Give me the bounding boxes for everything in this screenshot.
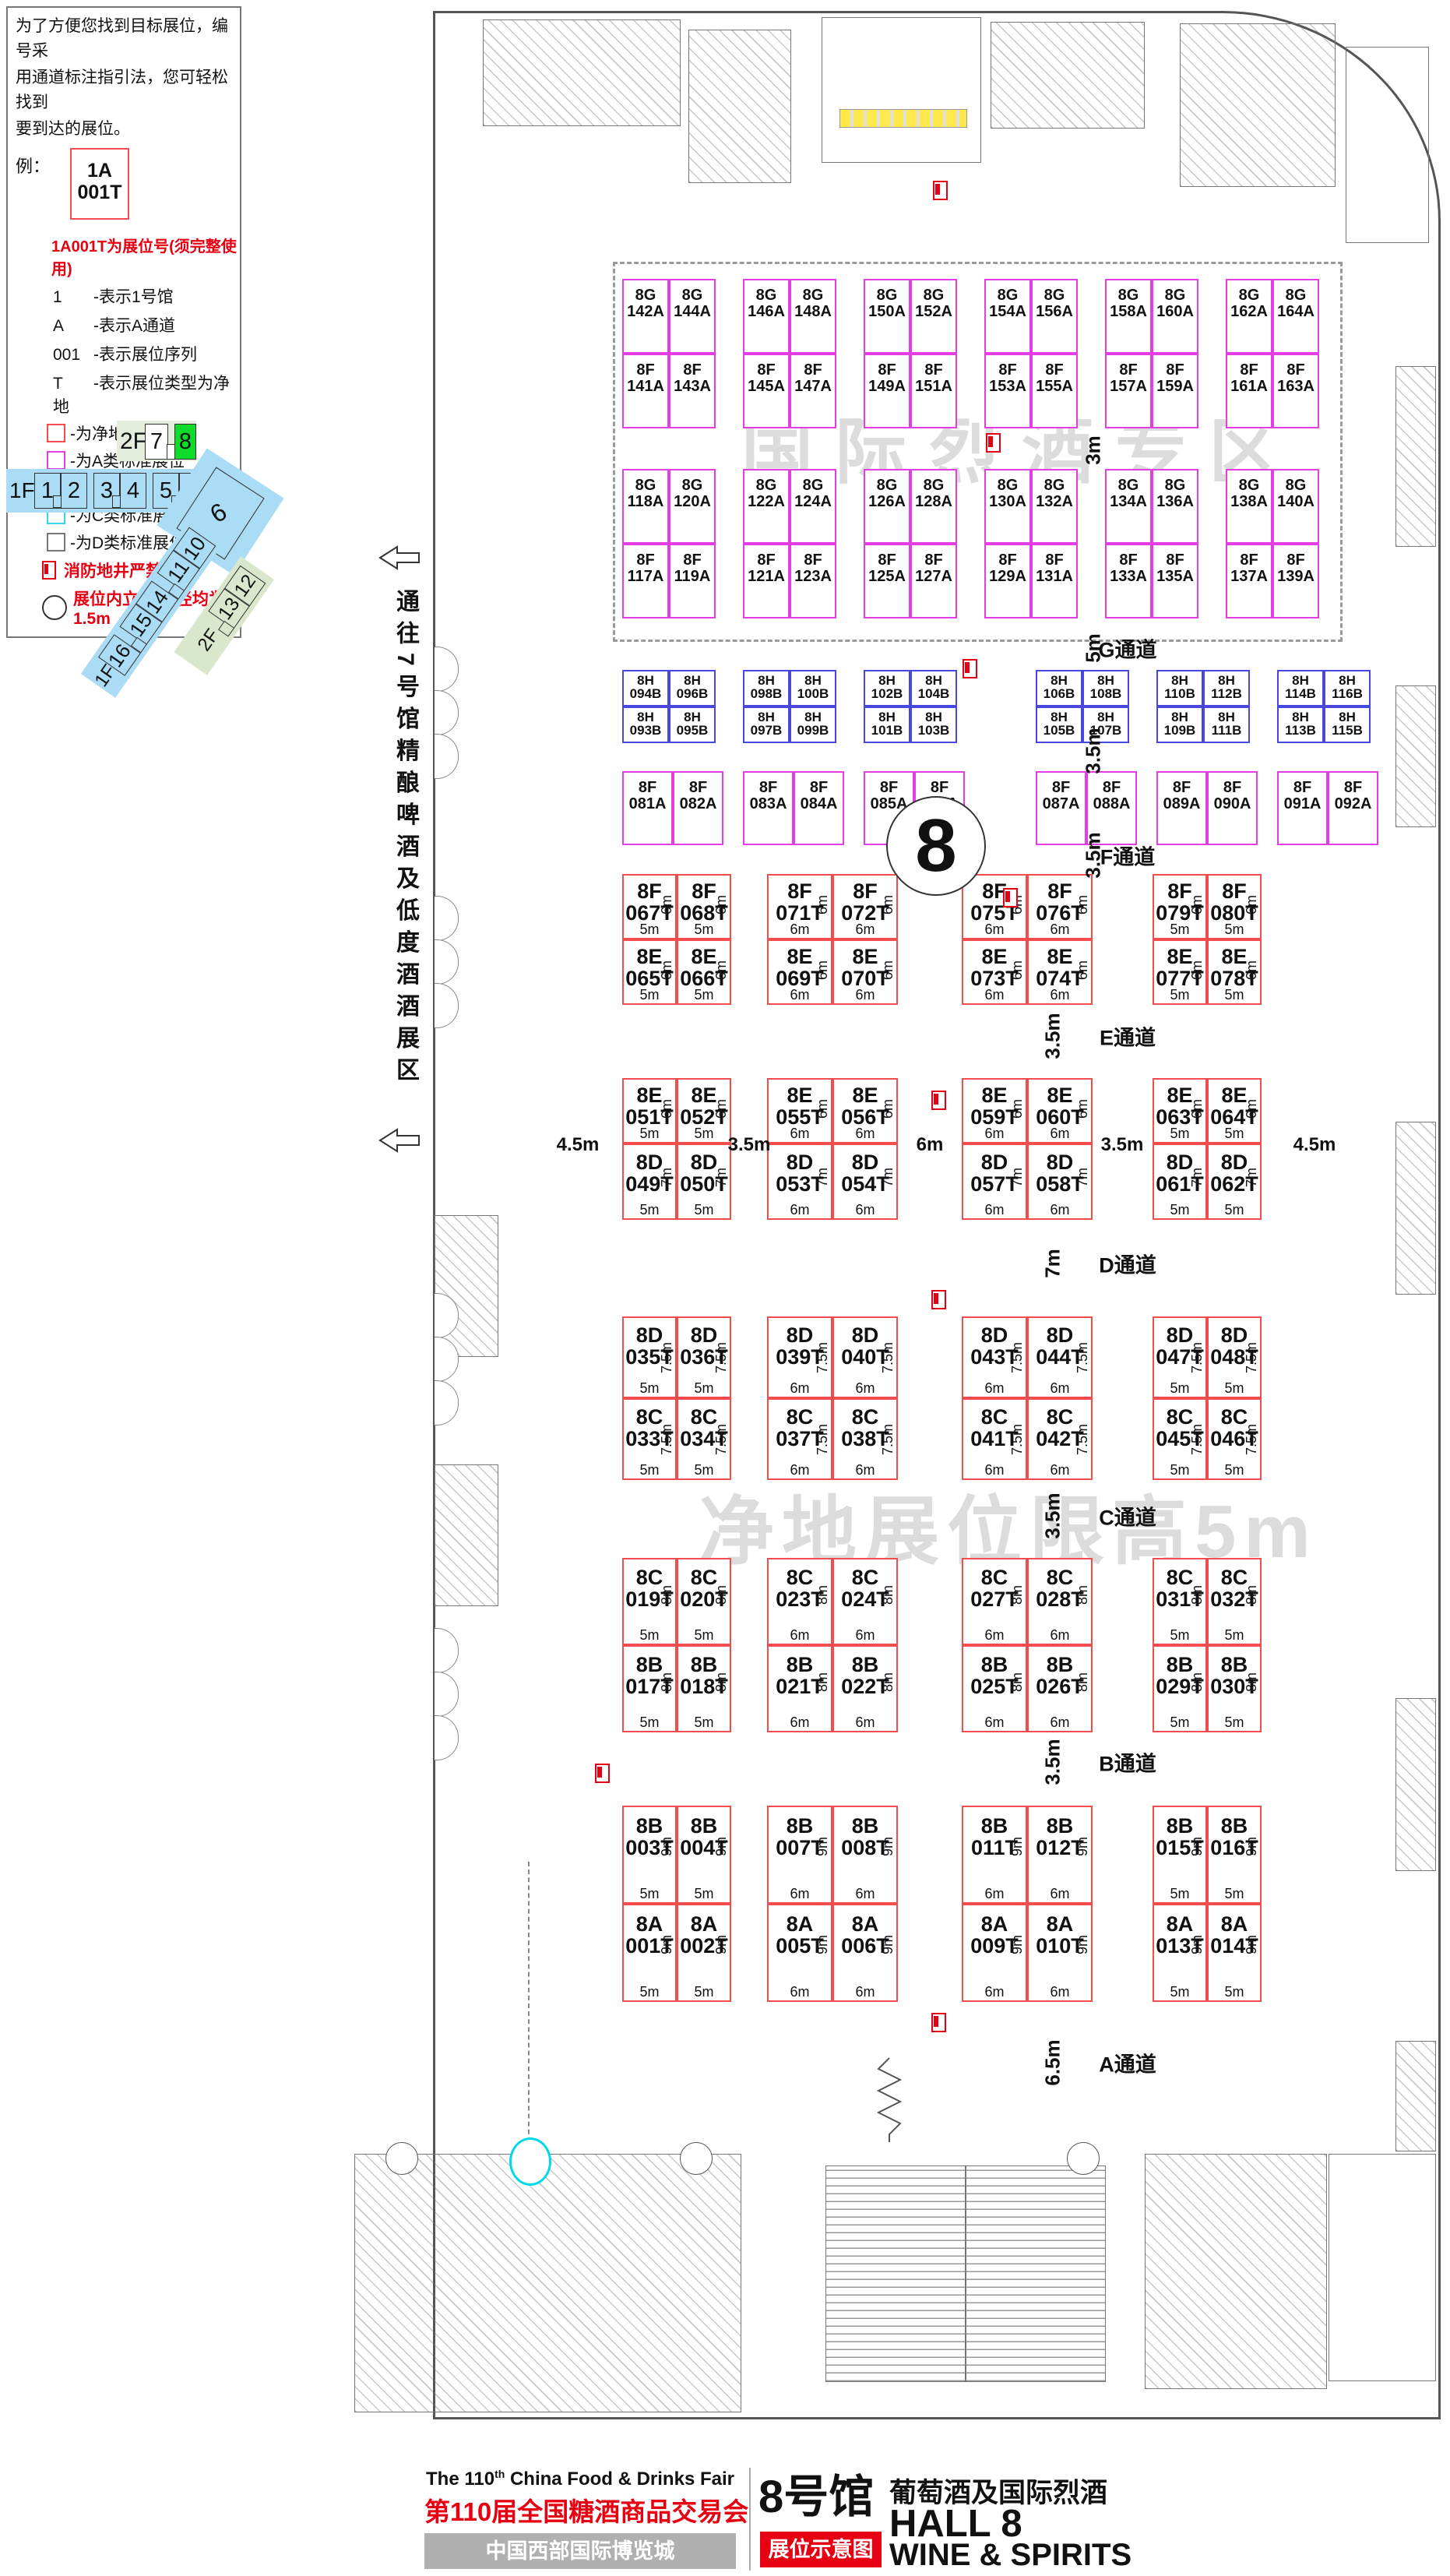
booth-depth-dim: 6m: [1244, 1099, 1260, 1119]
booth-8D050T: 8D050T7m5m: [677, 1144, 731, 1220]
booth-8A013T: 8A013T9m5m: [1153, 1904, 1207, 2002]
booth-8D047T: 8D047T7.5m5m: [1153, 1316, 1207, 1398]
booth-width-dim: 5m: [624, 987, 675, 1003]
corner-room: [1346, 47, 1429, 243]
minimap-hall-2: 2: [61, 473, 87, 509]
booth-8C024T: 8C024T8m6m: [832, 1558, 898, 1645]
booth-depth-dim: 6m: [1244, 960, 1260, 980]
booth-8G128A: 8G128A: [910, 469, 957, 544]
booth-depth-dim: 7.5m: [1009, 1342, 1026, 1373]
booth-8D044T: 8D044T7.5m6m: [1027, 1316, 1093, 1398]
booth-8H100B: 8H100B: [790, 670, 836, 707]
cross-aisle-dim-1: 3.5m: [728, 1134, 771, 1156]
booth-8H101B: 8H101B: [864, 707, 910, 743]
booth-depth-dim: 7m: [1009, 1168, 1026, 1187]
booth-width-dim: 6m: [1029, 1462, 1091, 1478]
booth-depth-dim: 6m: [815, 895, 831, 914]
booth-depth-dim: 6m: [713, 960, 730, 980]
booth-depth-dim: 8m: [1244, 1672, 1260, 1692]
booth-depth-dim: 7m: [1075, 1168, 1091, 1187]
booth-8F087A: 8F087A: [1036, 771, 1086, 845]
booth-8C041T: 8C041T7.5m6m: [962, 1398, 1027, 1480]
booth-depth-dim: 9m: [1009, 1837, 1026, 1856]
booth-depth-dim: 8m: [713, 1672, 730, 1692]
swatch-a-icon: [47, 451, 65, 470]
legend-example-label: 例：: [16, 153, 50, 178]
booth-depth-dim: 7m: [1189, 1168, 1205, 1187]
booth-8C034T: 8C034T7.5m5m: [677, 1398, 731, 1480]
booth-8F143A: 8F143A: [669, 354, 716, 428]
booth-width-dim: 6m: [963, 1462, 1026, 1478]
legend-code-1: A-表示A通道: [53, 313, 237, 337]
legend-example-booth: 1A 001T: [70, 148, 129, 220]
legend-headline: 1A001T为展位号(须完整使用): [51, 234, 237, 279]
booth-width-dim: 6m: [834, 1202, 896, 1218]
booth-8F090A: 8F090A: [1207, 771, 1258, 845]
booth-8G156A: 8G156A: [1031, 279, 1078, 354]
booth-8F149A: 8F149A: [864, 354, 910, 428]
pillar: [1067, 2142, 1100, 2175]
booth-width-dim: 5m: [678, 922, 730, 938]
booth-8D054T: 8D054T7m6m: [832, 1144, 898, 1220]
booth-8F161A: 8F161A: [1226, 354, 1272, 428]
booth-width-dim: 5m: [624, 1126, 675, 1142]
booth-8A005T: 8A005T9m6m: [767, 1904, 832, 2002]
booth-depth-dim: 9m: [1244, 1935, 1260, 1954]
booth-width-dim: 6m: [963, 1380, 1026, 1397]
booth-width-dim: 6m: [963, 1886, 1026, 1902]
booth-8B029T: 8B029T8m5m: [1153, 1645, 1207, 1732]
stairwell-block: [991, 22, 1145, 129]
booth-8E064T: 8E064T6m5m: [1207, 1078, 1262, 1144]
booth-width-dim: 6m: [1029, 1202, 1091, 1218]
footer-chinese-title: 第110届全国糖酒商品交易会: [424, 2491, 736, 2528]
booth-depth-dim: 7m: [713, 1168, 730, 1187]
booth-8G150A: 8G150A: [864, 279, 910, 354]
booth-depth-dim: 6m: [880, 895, 896, 914]
booth-depth-dim: 6m: [713, 1099, 730, 1119]
booth-width-dim: 5m: [1209, 1380, 1260, 1397]
aisle-label-5: B通道: [1099, 1747, 1156, 1778]
wall-niche: [1395, 366, 1436, 547]
booth-width-dim: 5m: [1209, 922, 1260, 938]
booth-8H097B: 8H097B: [743, 707, 790, 743]
booth-8C042T: 8C042T7.5m6m: [1027, 1398, 1093, 1480]
booth-depth-dim: 8m: [1189, 1585, 1205, 1605]
cross-aisle-dim-0: 4.5m: [557, 1134, 600, 1156]
booth-8B026T: 8B026T8m6m: [1027, 1645, 1093, 1732]
footer-en-sup: th: [494, 2468, 505, 2480]
cross-aisle-dim-2: 6m: [917, 1134, 944, 1156]
aisle-label-0: G通道: [1098, 633, 1156, 664]
booth-8F133A: 8F133A: [1105, 544, 1152, 618]
booth-depth-dim: 8m: [1009, 1585, 1026, 1605]
booth-8G126A: 8G126A: [864, 469, 910, 544]
booth-8C020T: 8C020T8m5m: [677, 1558, 731, 1645]
booth-8F141A: 8F141A: [622, 354, 669, 428]
booth-8G164A: 8G164A: [1272, 279, 1319, 354]
booth-depth-dim: 6m: [713, 895, 730, 914]
stair-block: [966, 2165, 1106, 2382]
legend-intro-line: 要到达的展位。: [16, 117, 234, 142]
booth-depth-dim: 8m: [659, 1585, 675, 1605]
booth-8H099B: 8H099B: [790, 707, 836, 743]
aisle-width-dim-2: 3.5m: [1041, 1013, 1065, 1059]
booth-8C045T: 8C045T7.5m5m: [1153, 1398, 1207, 1480]
booth-width-dim: 5m: [1209, 1462, 1260, 1478]
booth-8C023T: 8C023T8m6m: [767, 1558, 832, 1645]
booth-width-dim: 5m: [1209, 987, 1260, 1003]
booth-8D049T: 8D049T7m5m: [622, 1144, 677, 1220]
booth-8H102B: 8H102B: [864, 670, 910, 707]
pillar: [385, 2142, 418, 2175]
booth-depth-dim: 8m: [659, 1672, 675, 1692]
fire-well-icon: [986, 433, 1001, 453]
aisle-width-dim-3: 7m: [1041, 1249, 1065, 1278]
booth-depth-dim: 7.5m: [815, 1342, 831, 1373]
booth-8F163A: 8F163A: [1272, 354, 1319, 428]
fire-well-icon: [931, 2013, 946, 2032]
hall-number-circle: 8: [886, 796, 986, 896]
booth-8C031T: 8C031T8m5m: [1153, 1558, 1207, 1645]
booth-width-dim: 6m: [963, 1202, 1026, 1218]
minimap-1f-label: 1F: [9, 478, 35, 503]
booth-width-dim: 6m: [1029, 1714, 1091, 1731]
booth-8H113B: 8H113B: [1277, 707, 1324, 743]
legend-example-line2: 001T: [78, 181, 122, 203]
booth-depth-dim: 9m: [1244, 1837, 1260, 1856]
booth-8A001T: 8A001T9m5m: [622, 1904, 677, 2002]
booth-depth-dim: 7.5m: [815, 1424, 831, 1455]
booth-width-dim: 5m: [1209, 1714, 1260, 1731]
booth-8D040T: 8D040T7.5m6m: [832, 1316, 898, 1398]
booth-width-dim: 6m: [963, 987, 1026, 1003]
booth-depth-dim: 6m: [1009, 960, 1026, 980]
booth-width-dim: 5m: [1209, 1202, 1260, 1218]
booth-width-dim: 6m: [769, 1886, 831, 1902]
aisle-label-2: E通道: [1100, 1021, 1156, 1052]
booth-width-dim: 5m: [678, 1984, 730, 2000]
booth-8F117A: 8F117A: [622, 544, 669, 618]
booth-width-dim: 6m: [1029, 1627, 1091, 1644]
booth-8H109B: 8H109B: [1156, 707, 1203, 743]
booth-8C027T: 8C027T8m6m: [962, 1558, 1027, 1645]
booth-width-dim: 6m: [769, 1462, 831, 1478]
booth-8F135A: 8F135A: [1152, 544, 1198, 618]
booth-depth-dim: 7m: [1244, 1168, 1260, 1187]
booth-8C028T: 8C028T8m6m: [1027, 1558, 1093, 1645]
booth-8C037T: 8C037T7.5m6m: [767, 1398, 832, 1480]
booth-8G162A: 8G162A: [1226, 279, 1272, 354]
booth-8G124A: 8G124A: [790, 469, 836, 544]
booth-depth-dim: 9m: [713, 1837, 730, 1856]
booth-8E073T: 8E073T6m6m: [962, 939, 1027, 1005]
booth-width-dim: 6m: [963, 1714, 1026, 1731]
booth-8B025T: 8B025T8m6m: [962, 1645, 1027, 1732]
booth-8E077T: 8E077T6m5m: [1153, 939, 1207, 1005]
booth-8B011T: 8B011T9m6m: [962, 1806, 1027, 1904]
footer-map-badge: 展位示意图: [760, 2532, 882, 2567]
booth-width-dim: 6m: [769, 922, 831, 938]
booth-8B030T: 8B030T8m5m: [1207, 1645, 1262, 1732]
booth-depth-dim: 7.5m: [1075, 1342, 1091, 1373]
booth-width-dim: 6m: [769, 1627, 831, 1644]
legend-code-0: 1-表示1号馆: [53, 284, 237, 308]
booth-8H114B: 8H114B: [1277, 670, 1324, 707]
minimap-hall-4: 4: [120, 473, 146, 509]
booth-8D035T: 8D035T7.5m5m: [622, 1316, 677, 1398]
booth-depth-dim: 8m: [1075, 1585, 1091, 1605]
booth-8F151A: 8F151A: [910, 354, 957, 428]
booth-depth-dim: 6m: [1189, 960, 1205, 980]
booth-width-dim: 5m: [678, 1380, 730, 1397]
booth-width-dim: 6m: [834, 1627, 896, 1644]
booth-depth-dim: 7.5m: [880, 1342, 896, 1373]
aisle-width-dim-1: 3.5m: [1082, 832, 1106, 878]
restroom-block: [1180, 23, 1336, 187]
booth-depth-dim: 9m: [659, 1837, 675, 1856]
legend-code-2: 001-表示展位序列: [53, 342, 237, 365]
booth-8G136A: 8G136A: [1152, 469, 1198, 544]
pillar-highlighted: [509, 2137, 551, 2186]
fire-well-icon: [931, 1091, 946, 1110]
booth-width-dim: 5m: [1154, 1714, 1205, 1731]
aisle-label-6: A通道: [1099, 2048, 1156, 2078]
booth-8G146A: 8G146A: [743, 279, 790, 354]
booth-width-dim: 5m: [1154, 1126, 1205, 1142]
booth-8F147A: 8F147A: [790, 354, 836, 428]
legend-example-line1: 1A: [87, 160, 112, 181]
booth-8E055T: 8E055T6m6m: [767, 1078, 832, 1144]
cross-aisle-dim-3: 3.5m: [1101, 1134, 1144, 1156]
booth-depth-dim: 8m: [1009, 1672, 1026, 1692]
booth-8F155A: 8F155A: [1031, 354, 1078, 428]
booth-depth-dim: 9m: [1075, 1837, 1091, 1856]
wall-niche: [1395, 685, 1436, 827]
booth-depth-dim: 9m: [880, 1837, 896, 1856]
booth-width-dim: 5m: [678, 1126, 730, 1142]
footer-hall-cn: 8号馆: [758, 2460, 874, 2525]
restroom-block: [688, 30, 791, 183]
booth-depth-dim: 7.5m: [880, 1424, 896, 1455]
floorplan-canvas: 为了方便您找到目标展位，编号采 用通道标注指引法，您可轻松找到 要到达的展位。 …: [0, 0, 1450, 2576]
booth-8G120A: 8G120A: [669, 469, 716, 544]
booth-8F159A: 8F159A: [1152, 354, 1198, 428]
booth-8B007T: 8B007T9m6m: [767, 1806, 832, 1904]
booth-8E066T: 8E066T6m5m: [677, 939, 731, 1005]
booth-8D036T: 8D036T7.5m5m: [677, 1316, 731, 1398]
aisle-width-dim-6: 6.5m: [1041, 2039, 1065, 2085]
footer-venue-bar: 中国西部国际博览城: [424, 2533, 736, 2569]
booth-8H103B: 8H103B: [910, 707, 957, 743]
booth-width-dim: 6m: [963, 1126, 1026, 1142]
booth-width-dim: 6m: [834, 1126, 896, 1142]
booth-width-dim: 5m: [1209, 1126, 1260, 1142]
booth-8F092A: 8F092A: [1328, 771, 1378, 845]
booth-width-dim: 5m: [1209, 1627, 1260, 1644]
booth-depth-dim: 7.5m: [1009, 1424, 1026, 1455]
booth-8B015T: 8B015T9m5m: [1153, 1806, 1207, 1904]
booth-depth-dim: 9m: [815, 1837, 831, 1856]
booth-8A006T: 8A006T9m6m: [832, 1904, 898, 2002]
booth-width-dim: 5m: [624, 1984, 675, 2000]
booth-8F081A: 8F081A: [622, 771, 673, 845]
booth-depth-dim: 9m: [815, 1935, 831, 1954]
booth-depth-dim: 6m: [880, 960, 896, 980]
booth-8C032T: 8C032T8m5m: [1207, 1558, 1262, 1645]
booth-8H116B: 8H116B: [1324, 670, 1371, 707]
booth-width-dim: 5m: [624, 1714, 675, 1731]
booth-8F091A: 8F091A: [1277, 771, 1328, 845]
fire-well-icon: [931, 1290, 946, 1309]
booth-8D058T: 8D058T7m6m: [1027, 1144, 1093, 1220]
booth-8D048T: 8D048T7.5m5m: [1207, 1316, 1262, 1398]
booth-8C033T: 8C033T7.5m5m: [622, 1398, 677, 1480]
booth-8D057T: 8D057T7m6m: [962, 1144, 1027, 1220]
booth-8B022T: 8B022T8m6m: [832, 1645, 898, 1732]
service-room: [435, 1464, 498, 1606]
booth-depth-dim: 7.5m: [659, 1424, 675, 1455]
booth-depth-dim: 6m: [659, 895, 675, 914]
booth-width-dim: 6m: [769, 1380, 831, 1397]
booth-8E052T: 8E052T6m5m: [677, 1078, 731, 1144]
booth-8F089A: 8F089A: [1156, 771, 1207, 845]
booth-width-dim: 6m: [834, 987, 896, 1003]
booth-8D061T: 8D061T7m5m: [1153, 1144, 1207, 1220]
legend-code-3: T-表示展位类型为净地: [53, 371, 237, 418]
booth-8B021T: 8B021T8m6m: [767, 1645, 832, 1732]
booth-depth-dim: 6m: [815, 1099, 831, 1119]
booth-8C038T: 8C038T7.5m6m: [832, 1398, 898, 1480]
booth-8G158A: 8G158A: [1105, 279, 1152, 354]
booth-depth-dim: 9m: [713, 1935, 730, 1954]
footer-english-title: The 110th China Food & Drinks Fair: [424, 2468, 736, 2490]
booth-8B004T: 8B004T9m5m: [677, 1806, 731, 1904]
booth-width-dim: 5m: [1154, 987, 1205, 1003]
cross-aisle-dim-4: 4.5m: [1293, 1134, 1336, 1156]
section-dash-line: [528, 1862, 530, 2150]
booth-8D043T: 8D043T7.5m6m: [962, 1316, 1027, 1398]
booth-width-dim: 6m: [1029, 922, 1091, 938]
booth-width-dim: 5m: [1154, 1380, 1205, 1397]
booth-width-dim: 6m: [963, 1984, 1026, 2000]
fire-well-icon: [42, 561, 56, 580]
pillar: [680, 2142, 713, 2175]
minimap-2f-strip: 2F 7 8: [117, 421, 196, 461]
booth-depth-dim: 7m: [659, 1168, 675, 1187]
booth-depth-dim: 6m: [1189, 1099, 1205, 1119]
booth-8A002T: 8A002T9m5m: [677, 1904, 731, 2002]
booth-depth-dim: 7m: [880, 1168, 896, 1187]
pillar-icon: [42, 595, 67, 620]
left-arrow-icon: [378, 1128, 421, 1153]
booth-8H110B: 8H110B: [1156, 670, 1203, 707]
booth-8B017T: 8B017T8m5m: [622, 1645, 677, 1732]
booth-width-dim: 6m: [1029, 1380, 1091, 1397]
booth-width-dim: 6m: [963, 922, 1026, 938]
booth-8F083A: 8F083A: [743, 771, 794, 845]
booth-8H095B: 8H095B: [669, 707, 716, 743]
minimap-hall-8-highlight: 8: [174, 424, 196, 460]
booth-8G130A: 8G130A: [984, 469, 1031, 544]
legend-intro-line: 为了方便您找到目标展位，编号采: [16, 14, 234, 64]
booth-8H098B: 8H098B: [743, 670, 790, 707]
booth-8E078T: 8E078T6m5m: [1207, 939, 1262, 1005]
booth-8G132A: 8G132A: [1031, 469, 1078, 544]
booth-8G144A: 8G144A: [669, 279, 716, 354]
booth-8E065T: 8E065T6m5m: [622, 939, 677, 1005]
booth-width-dim: 5m: [1154, 1202, 1205, 1218]
booth-8F137A: 8F137A: [1226, 544, 1272, 618]
booth-8F072T: 8F072T6m6m: [832, 874, 898, 939]
booth-8F131A: 8F131A: [1031, 544, 1078, 618]
booth-8C019T: 8C019T8m5m: [622, 1558, 677, 1645]
aisle-width-dim-0: 5m: [1082, 633, 1106, 663]
stair-block: [825, 2165, 966, 2382]
booth-width-dim: 6m: [834, 1886, 896, 1902]
restroom-block: [354, 2154, 741, 2412]
booth-8E069T: 8E069T6m6m: [767, 939, 832, 1005]
booth-width-dim: 5m: [1154, 1627, 1205, 1644]
booth-width-dim: 5m: [624, 1627, 675, 1644]
booth-width-dim: 6m: [769, 1714, 831, 1731]
booth-depth-dim: 6m: [1075, 1099, 1091, 1119]
booth-width-dim: 6m: [1029, 1126, 1091, 1142]
booth-8G134A: 8G134A: [1105, 469, 1152, 544]
booth-depth-dim: 8m: [1189, 1672, 1205, 1692]
booth-8B018T: 8B018T8m5m: [677, 1645, 731, 1732]
booth-depth-dim: 8m: [815, 1585, 831, 1605]
booth-width-dim: 6m: [769, 1126, 831, 1142]
booth-depth-dim: 7m: [815, 1168, 831, 1187]
booth-8A014T: 8A014T9m5m: [1207, 1904, 1262, 2002]
booth-8E060T: 8E060T6m6m: [1027, 1078, 1093, 1144]
booth-width-dim: 5m: [678, 1886, 730, 1902]
booth-8E074T: 8E074T6m6m: [1027, 939, 1093, 1005]
booth-depth-dim: 6m: [659, 960, 675, 980]
booth-width-dim: 5m: [1209, 1886, 1260, 1902]
booth-width-dim: 6m: [834, 922, 896, 938]
booth-8F079T: 8F079T6m5m: [1153, 874, 1207, 939]
stairwell-block: [483, 19, 681, 126]
booth-width-dim: 5m: [678, 1627, 730, 1644]
booth-width-dim: 6m: [963, 1627, 1026, 1644]
booth-width-dim: 5m: [1209, 1984, 1260, 2000]
booth-8A009T: 8A009T9m6m: [962, 1904, 1027, 2002]
footer-hall-sub: WINE & SPIRITS: [889, 2538, 1131, 2573]
booth-8G148A: 8G148A: [790, 279, 836, 354]
booth-depth-dim: 6m: [659, 1099, 675, 1119]
booth-depth-dim: 9m: [659, 1935, 675, 1954]
booth-width-dim: 5m: [624, 1380, 675, 1397]
minimap-hall-7: 7: [145, 424, 168, 460]
aisle-label-4: C通道: [1099, 1501, 1156, 1531]
booth-depth-dim: 9m: [880, 1935, 896, 1954]
legend-intro-line: 用通道标注指引法，您可轻松找到: [16, 65, 234, 115]
footer-divider: [749, 2468, 751, 2571]
booth-width-dim: 5m: [1154, 922, 1205, 938]
booth-8B012T: 8B012T9m6m: [1027, 1806, 1093, 1904]
wall-niche: [1395, 1698, 1436, 1871]
booth-depth-dim: 7.5m: [1075, 1424, 1091, 1455]
booth-width-dim: 6m: [834, 1714, 896, 1731]
booth-8E051T: 8E051T6m5m: [622, 1078, 677, 1144]
booth-8D039T: 8D039T7.5m6m: [767, 1316, 832, 1398]
booth-depth-dim: 7.5m: [1189, 1342, 1205, 1373]
entrance-lobby: [822, 17, 981, 163]
booth-8F139A: 8F139A: [1272, 544, 1319, 618]
aisle-width-dim-4: 3.5m: [1041, 1492, 1065, 1538]
